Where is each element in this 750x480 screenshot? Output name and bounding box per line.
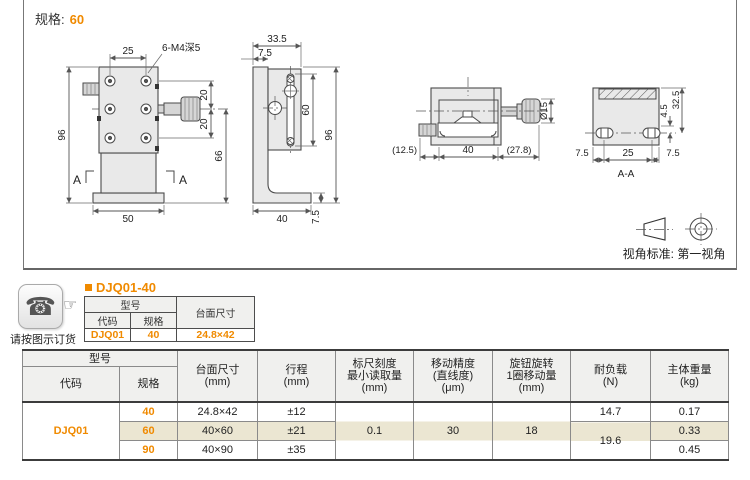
order-cell-code: DJQ01 (85, 329, 131, 342)
cell-size-90: 40×90 (178, 441, 258, 461)
header-accuracy: 移动精度 (直线度) (μm) (414, 350, 493, 402)
header-scale: 标尺刻度 最小读取量 (mm) (336, 350, 414, 402)
cell-size-60: 40×60 (178, 422, 258, 441)
front-dim-50: 50 (122, 214, 134, 225)
header-stroke: 行程 (mm) (258, 350, 336, 402)
order-note: 请按图示订货 (1, 331, 85, 347)
front-dim-20b: 20 (199, 118, 210, 130)
section-label: A-A (618, 169, 635, 180)
header-load: 耐负载 (N) (571, 350, 651, 402)
section-marker-a-right: A (179, 173, 187, 187)
cell-stroke-40: ±12 (258, 402, 336, 422)
cell-stroke-90: ±35 (258, 441, 336, 461)
cell-weight-90: 0.45 (651, 441, 729, 461)
side-dim-40: 40 (276, 214, 288, 225)
side-dim-33-5: 33.5 (267, 34, 287, 45)
header-weight: 主体重量 (kg) (651, 350, 729, 402)
pointing-finger-icon: ☞ (63, 295, 77, 315)
front-dim-66: 66 (214, 150, 225, 162)
order-header-model: 型号 (85, 297, 177, 313)
cell-weight-60: 0.33 (651, 422, 729, 441)
order-table-heading: DJQ01-40 (85, 280, 156, 295)
cell-spec-90: 90 (120, 441, 178, 461)
projection-label: 视角标准: 第一视角 (623, 246, 726, 261)
front-view: 25 6-M4深5 96 20 20 66 50 A A (57, 42, 229, 225)
cell-load-40: 14.7 (571, 402, 651, 422)
order-header-size: 台面尺寸 (177, 297, 255, 329)
order-header-code: 代码 (85, 313, 131, 329)
header-code: 代码 (23, 367, 120, 403)
front-dim-96: 96 (57, 129, 68, 141)
top-view: (12.5) 40 (27.8) Ø15 (392, 77, 555, 161)
section-dim-7-5-left: 7.5 (575, 148, 588, 159)
phone-icon: ☎ (18, 284, 63, 329)
main-spec-table-wrap: 型号 台面尺寸 (mm) 行程 (mm) 标尺刻度 最小读取量 (mm) 移动精… (22, 349, 729, 461)
side-dim-60: 60 (301, 104, 312, 116)
front-thread-label: 6-M4深5 (162, 42, 201, 54)
side-dim-96: 96 (324, 129, 335, 141)
cell-code: DJQ01 (23, 402, 120, 460)
projection-symbol: 视角标准: 第一视角 (623, 213, 726, 261)
section-marker-a-left: A (73, 173, 81, 187)
cell-accuracy: 30 (414, 402, 493, 460)
top-dim-dia15: Ø15 (539, 102, 550, 120)
front-dim-20a: 20 (199, 89, 210, 101)
order-table: 型号 台面尺寸 代码 规格 DJQ01 40 24.8×42 (84, 296, 255, 342)
section-dim-25: 25 (622, 148, 634, 159)
cell-knob: 18 (493, 402, 571, 460)
top-dim-27-8: (27.8) (507, 145, 532, 156)
cell-load-60-90: 19.6 (571, 422, 651, 461)
top-dim-40: 40 (462, 145, 474, 156)
cell-weight-40: 0.17 (651, 402, 729, 422)
drawing-panel: 规格:60 (23, 0, 737, 270)
cell-size-40: 24.8×42 (178, 402, 258, 422)
top-dim-12-5: (12.5) (392, 145, 417, 156)
section-dim-4-5: 4.5 (659, 104, 670, 117)
section-view: 32.5 4.5 7.5 25 7.5 A-A (575, 88, 686, 180)
header-knob: 旋钮旋转 1圈移动量 (mm) (493, 350, 571, 402)
order-header-spec: 规格 (131, 313, 177, 329)
main-spec-table: 型号 台面尺寸 (mm) 行程 (mm) 标尺刻度 最小读取量 (mm) 移动精… (22, 349, 729, 461)
front-dim-25: 25 (122, 46, 134, 57)
order-heading-text: DJQ01-40 (96, 280, 156, 295)
cell-scale: 0.1 (336, 402, 414, 460)
side-view: 33.5 7.5 60 96 40 7.5 (241, 34, 340, 225)
cell-spec-60: 60 (120, 422, 178, 441)
projection-circle-icon (685, 213, 717, 245)
cell-spec-40: 40 (120, 402, 178, 422)
header-size: 台面尺寸 (mm) (178, 350, 258, 402)
header-model: 型号 (23, 350, 178, 367)
side-dim-7-5-top: 7.5 (258, 48, 272, 59)
catalog-page: 规格:60 (0, 0, 750, 480)
side-dim-7-5-bottom: 7.5 (311, 210, 322, 224)
order-cell-size: 24.8×42 (177, 329, 255, 342)
section-dim-32-5: 32.5 (671, 91, 682, 110)
phone-glyph: ☎ (25, 292, 56, 322)
frustum-icon (644, 218, 665, 240)
bullet-square-icon (85, 284, 92, 291)
technical-drawing: 25 6-M4深5 96 20 20 66 50 A A (24, 0, 736, 268)
order-cell-spec: 40 (131, 329, 177, 342)
cell-stroke-60: ±21 (258, 422, 336, 441)
header-spec: 规格 (120, 367, 178, 403)
section-dim-7-5-right: 7.5 (666, 148, 679, 159)
